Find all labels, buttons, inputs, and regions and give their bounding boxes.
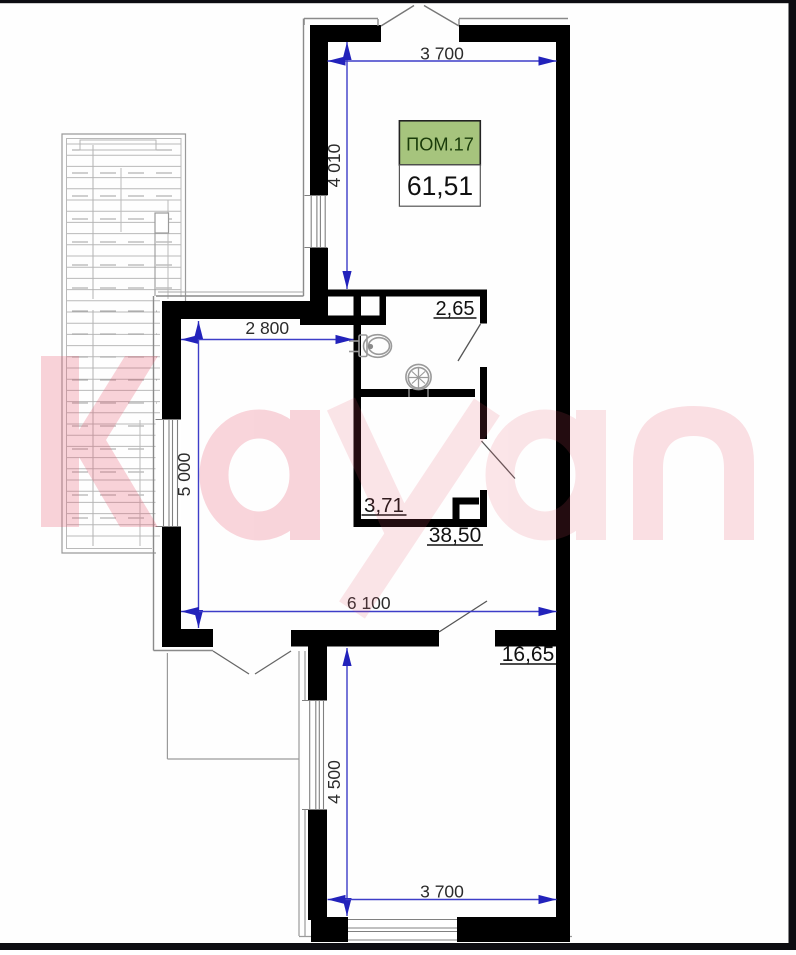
svg-text:4 500: 4 500	[324, 760, 344, 804]
svg-text:38,50: 38,50	[429, 524, 482, 547]
svg-text:3 700: 3 700	[420, 882, 464, 902]
svg-text:2 800: 2 800	[245, 318, 289, 338]
svg-text:16,65: 16,65	[502, 643, 555, 666]
svg-text:61,51: 61,51	[407, 171, 473, 201]
svg-text:5 000: 5 000	[174, 452, 194, 496]
svg-text:ПОМ.17: ПОМ.17	[406, 135, 474, 155]
svg-text:2,65: 2,65	[436, 298, 475, 320]
svg-text:4 010: 4 010	[324, 143, 344, 187]
svg-text:3 700: 3 700	[420, 44, 464, 64]
